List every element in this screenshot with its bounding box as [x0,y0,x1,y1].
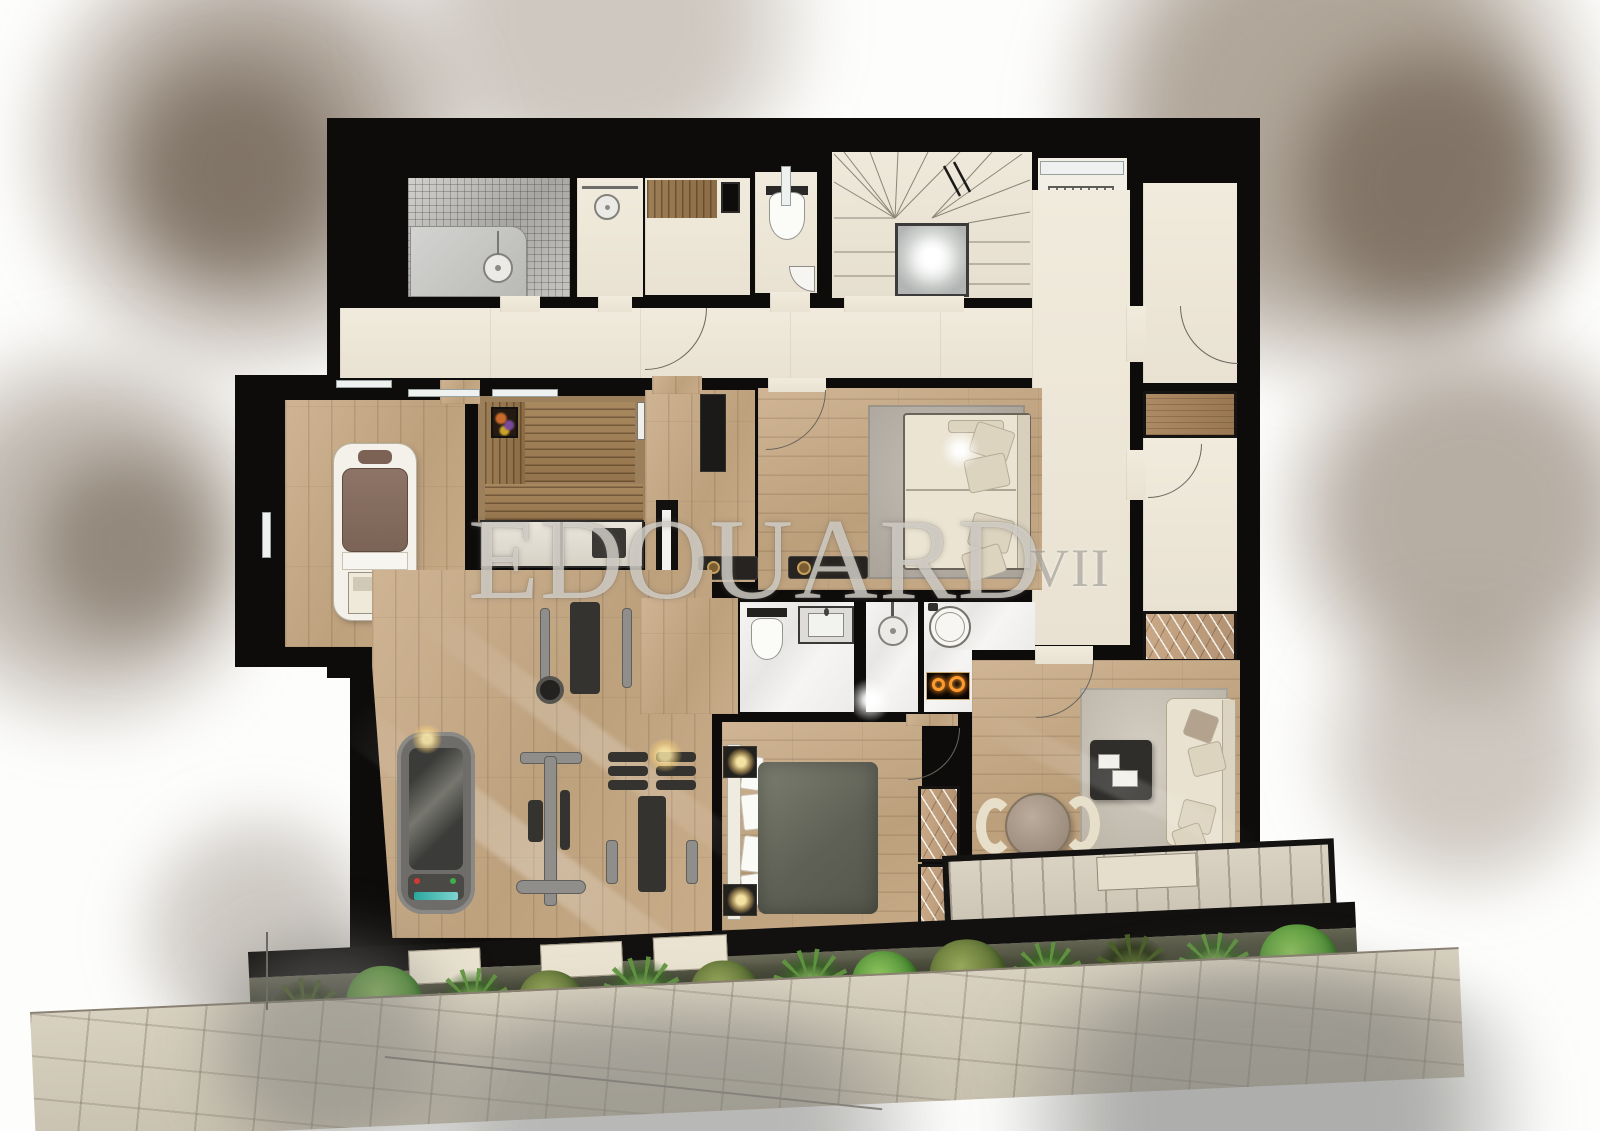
door-opening [1126,450,1146,500]
bedroom2-wardrobe-upper [918,786,960,862]
watercolor-wash-top-right-dark [1280,20,1580,350]
watermark-suffix: VII [1030,540,1170,600]
door-opening [598,296,632,312]
flat-bench [638,796,666,892]
sauna-glass-door [637,402,645,440]
gym-light-flare [412,724,442,754]
window [492,389,558,397]
massage-table-cushion [342,468,408,552]
built-in-cabinet [1143,391,1237,438]
bistro-chair [1062,796,1100,852]
treadmill-belt [409,748,463,870]
window [336,380,392,388]
bench-frame [606,840,618,884]
door-opening [500,296,540,312]
counter-edge [582,186,638,189]
sauna-bench-upper [525,402,635,482]
tall-cabinet [700,394,726,472]
sauna-heater [491,407,518,438]
watercolor-wash-left-dark [30,430,220,660]
door-opening [906,714,958,726]
lamp-glow [727,748,755,776]
door-opening [1126,306,1146,362]
wood-slat-bench [647,180,717,218]
terrace-landing [1096,852,1197,891]
watercolor-wash-top-left-dark [120,40,350,300]
barbell-plate-icon [536,676,564,704]
weight-bar [608,780,648,790]
door-opening [770,292,810,312]
window [408,389,480,397]
shower-nozzle [495,265,501,271]
bedroom2-duvet [758,762,878,914]
shelf-item [353,577,373,591]
massage-table-towel [342,552,408,570]
lounge-closet [1143,611,1237,662]
stair-opening [844,296,964,312]
multigym-arm [560,790,570,850]
lamp-glow [727,886,755,914]
door-opening [652,376,702,394]
bed-seam [906,489,1016,491]
bench-frame [686,840,698,884]
multigym-stack [528,800,543,842]
treadmill-screen [414,892,458,900]
treadmill-led-red [414,878,420,884]
burner-flame-icon [932,678,945,691]
treadmill-led-green [450,878,456,884]
massage-table-headrest [358,450,392,464]
weight-bar [656,780,696,790]
shower-arm [497,231,499,255]
lift-glow [905,233,959,287]
burner-flame-icon [949,676,965,692]
multigym-handle [516,880,586,894]
light-flare [848,678,892,722]
light-flare [940,430,980,470]
watermark-text: EDOUARD [468,500,1068,630]
floor-plan-rendering: EDOUARD VII [0,0,1600,1131]
window-tech [1040,161,1124,175]
weight-bar [608,766,648,776]
bistro-chair [976,798,1014,854]
gym-light-flare [648,738,682,772]
weight-bar [608,752,648,762]
basin-drain [605,205,610,210]
window [781,166,791,206]
window [262,512,271,558]
mirror-panel [721,182,740,213]
